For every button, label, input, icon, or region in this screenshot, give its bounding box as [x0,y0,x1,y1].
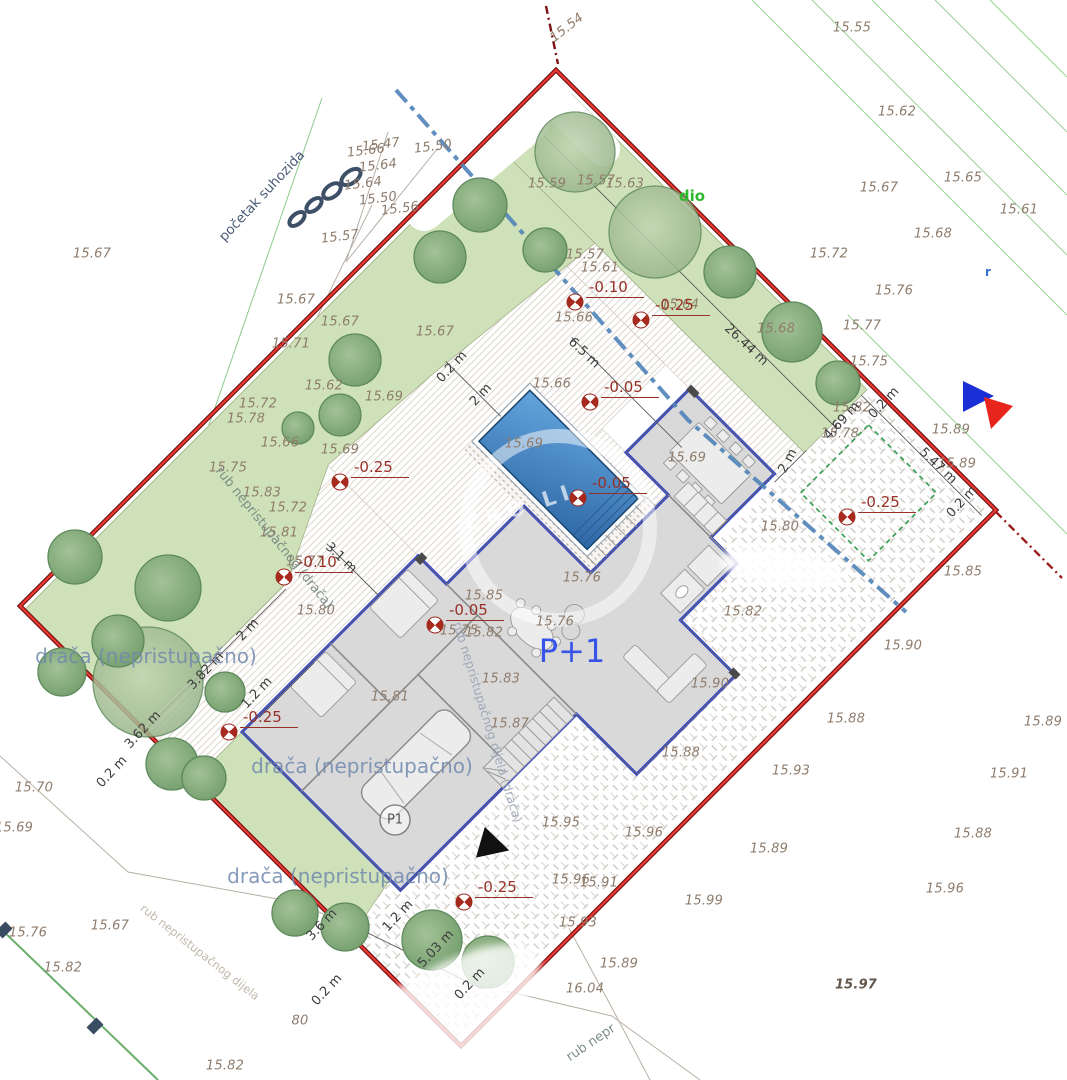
site-plan: 15.5515.6215.6515.6715.6115.6815.7215.76… [0,0,1067,1080]
parking-circle [380,805,410,835]
site-plan-drawing [0,0,1067,1080]
stone-wall-icons [287,166,364,229]
north-arrow-icon [963,381,1013,429]
